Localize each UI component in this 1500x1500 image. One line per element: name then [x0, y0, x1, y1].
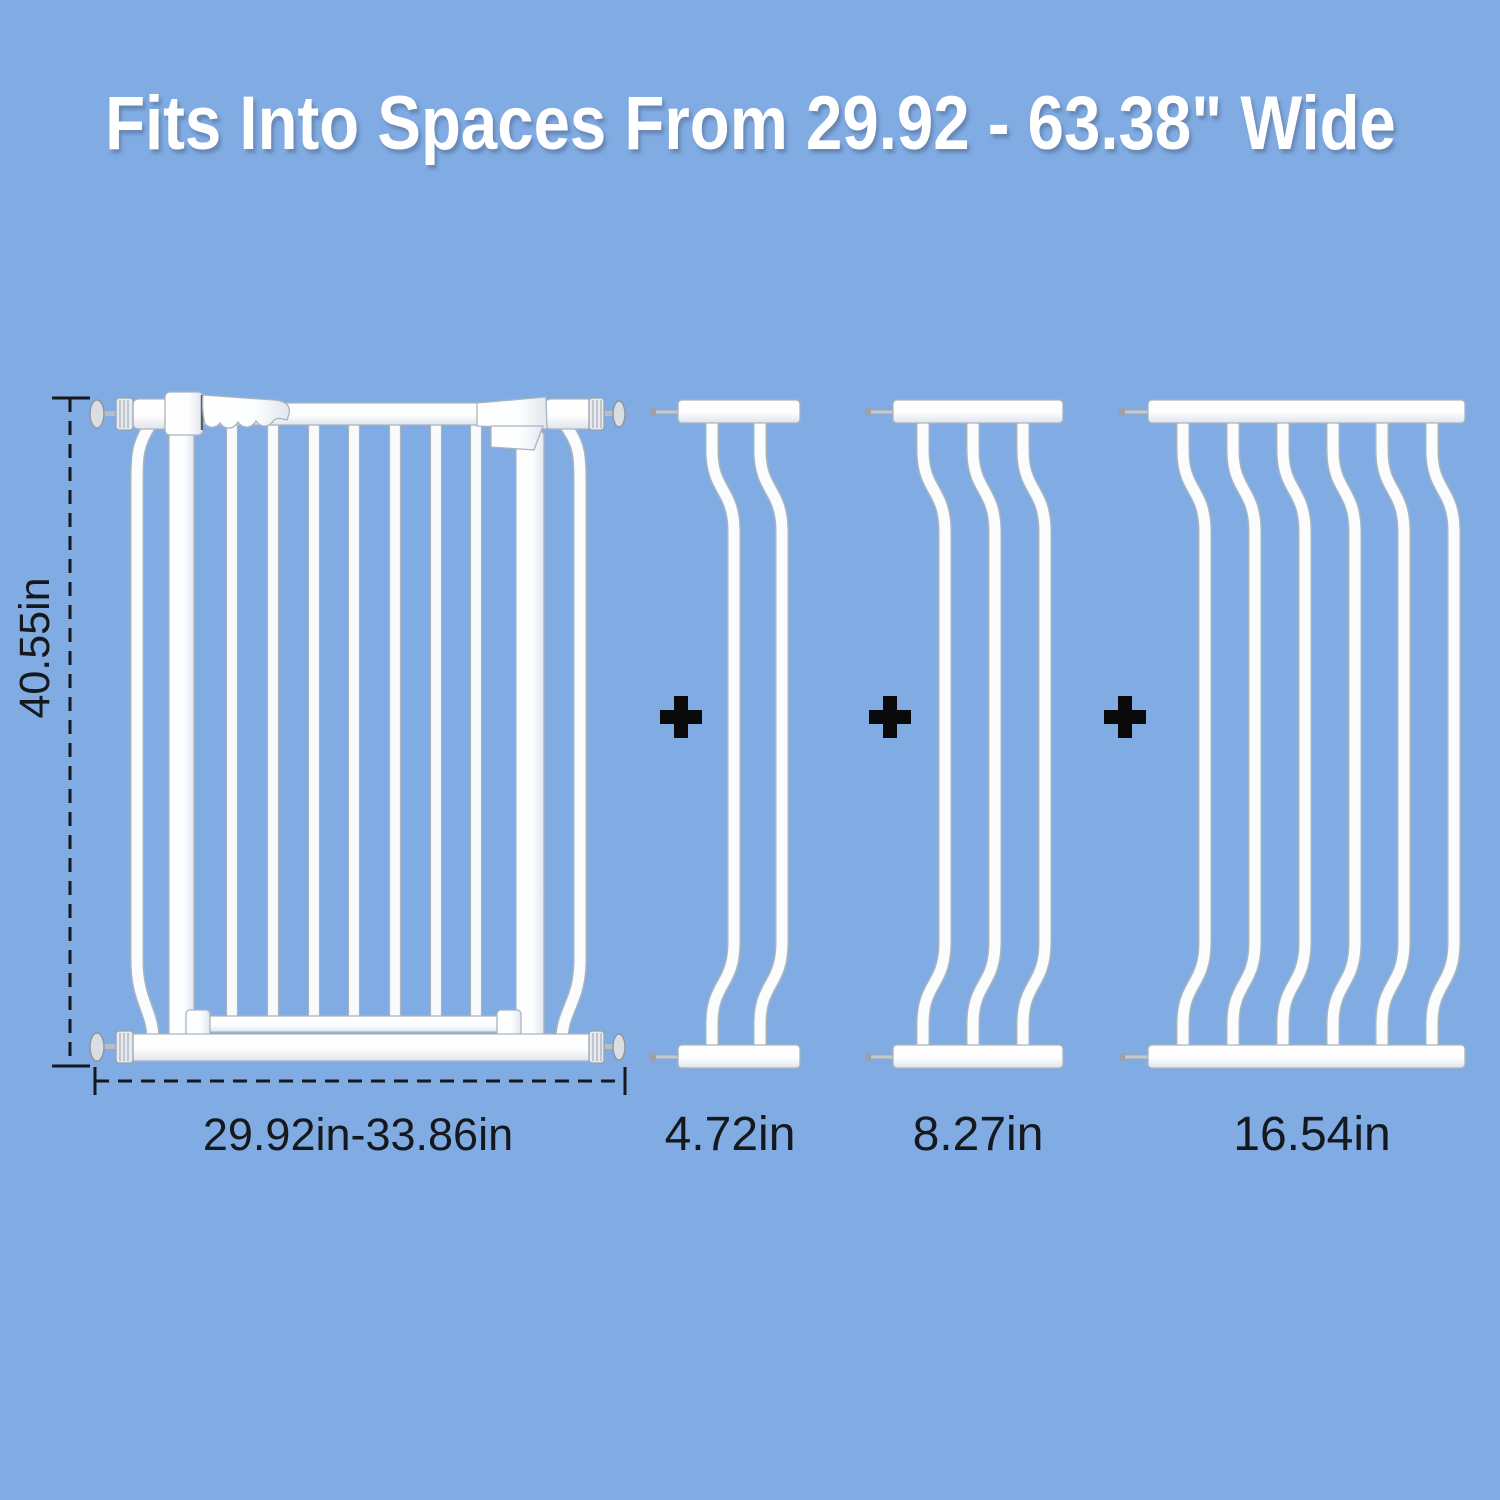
gate-latch: [477, 397, 547, 450]
extension-bars: [712, 423, 782, 1046]
pressure-knob-top-left: [90, 398, 133, 430]
plus-icon: [869, 696, 911, 738]
height-dimension-line: [52, 398, 90, 1066]
gate-width-label: 29.92in-33.86in: [203, 1109, 513, 1160]
extension-top-bar: [1148, 400, 1465, 423]
gate-outer-frame-bar-right: [562, 420, 580, 1040]
gate-outer-frame-bar-left: [137, 420, 153, 1040]
extension-top-bar: [893, 400, 1063, 423]
extension-bars: [1183, 423, 1454, 1046]
main-gate: [90, 392, 625, 1063]
extension-large: 16.54in: [1119, 400, 1465, 1161]
gate-left-post: [169, 422, 194, 1040]
extension-label: 16.54in: [1233, 1108, 1390, 1161]
extension-bottom-bar: [893, 1045, 1063, 1068]
gate-door-bars: [227, 420, 482, 1020]
diagram-canvas: 40.55in 29.92in-33.86in: [0, 0, 1500, 1500]
extension-label: 8.27in: [913, 1108, 1044, 1161]
product-infographic: Fits Into Spaces From 29.92 - 63.38" Wid…: [0, 0, 1500, 1500]
extension-small: 4.72in: [650, 400, 800, 1161]
extension-bottom-bar: [1148, 1045, 1465, 1068]
extension-bars: [923, 423, 1045, 1046]
gate-height-label: 40.55in: [11, 577, 59, 718]
plus-icon: [660, 696, 702, 738]
pressure-knob-top-right: [589, 398, 625, 430]
extension-bottom-bar: [678, 1045, 800, 1068]
gate-right-post: [516, 432, 544, 1040]
extension-medium: 8.27in: [865, 400, 1063, 1161]
pressure-knob-bottom-right: [589, 1031, 625, 1063]
gate-bottom-bar: [128, 1034, 594, 1061]
plus-icon: [1104, 696, 1146, 738]
extension-label: 4.72in: [665, 1108, 796, 1161]
width-dimension-line: [95, 1067, 625, 1095]
extension-top-bar: [678, 400, 800, 423]
pressure-knob-bottom-left: [90, 1031, 133, 1063]
